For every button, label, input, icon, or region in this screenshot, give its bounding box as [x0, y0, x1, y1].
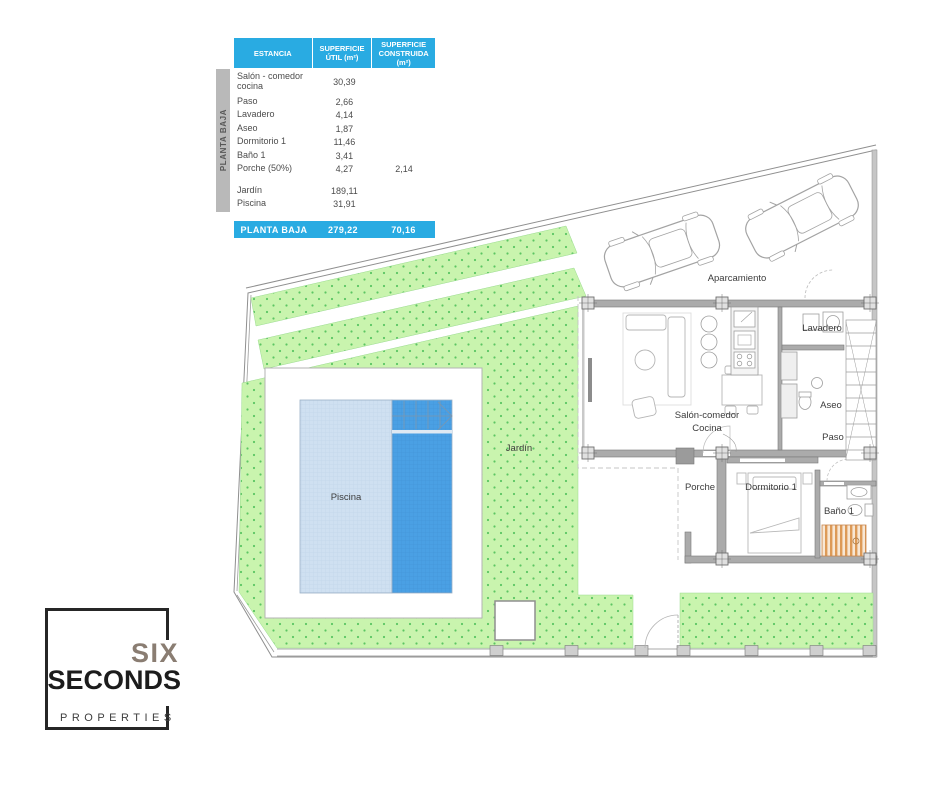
logo-properties: PROPERTIES [60, 712, 176, 724]
label-porche: Porche [685, 482, 715, 493]
label-dormitorio: Dormitorio 1 [745, 482, 797, 493]
label-aseo: Aseo [820, 400, 842, 411]
label-piscina: Piscina [331, 492, 362, 503]
header-estancia: ESTANCIA [234, 38, 312, 68]
table-row: Aseo 1,87 [234, 122, 435, 136]
table-row: Paso 2,66 [234, 95, 435, 109]
floor-plan: Aparcamiento Lavadero Aseo Paso Salón-co… [225, 140, 890, 670]
label-paso: Paso [822, 432, 844, 443]
label-aparcamiento: Aparcamiento [708, 273, 767, 284]
stairs [846, 320, 876, 460]
logo-seconds: SECONDS [45, 667, 181, 694]
label-bano: Baño 1 [824, 506, 854, 517]
label-lavadero: Lavadero [802, 323, 842, 334]
header-superficie-util: SUPERFICIE ÚTIL (m²) [313, 38, 372, 68]
label-salon-comedor: Salón-comedor [675, 410, 739, 421]
pool [300, 400, 452, 593]
label-cocina: Cocina [692, 423, 722, 434]
six-seconds-logo: SIX SECONDS PROPERTIES [45, 604, 235, 739]
header-superficie-construida: SUPERFICIE CONSTRUIDA (m²) [372, 38, 435, 68]
garden-shed [495, 601, 535, 640]
table-header-row: ESTANCIA SUPERFICIE ÚTIL (m²) SUPERFICIE… [234, 38, 435, 68]
shower-floor [822, 525, 866, 556]
table-row: Salón - comedor cocina 30,39 [234, 69, 435, 95]
table-row: Lavadero 4,14 [234, 109, 435, 123]
label-jardin: Jardín [506, 443, 532, 454]
logo-six: SIX [45, 640, 179, 667]
